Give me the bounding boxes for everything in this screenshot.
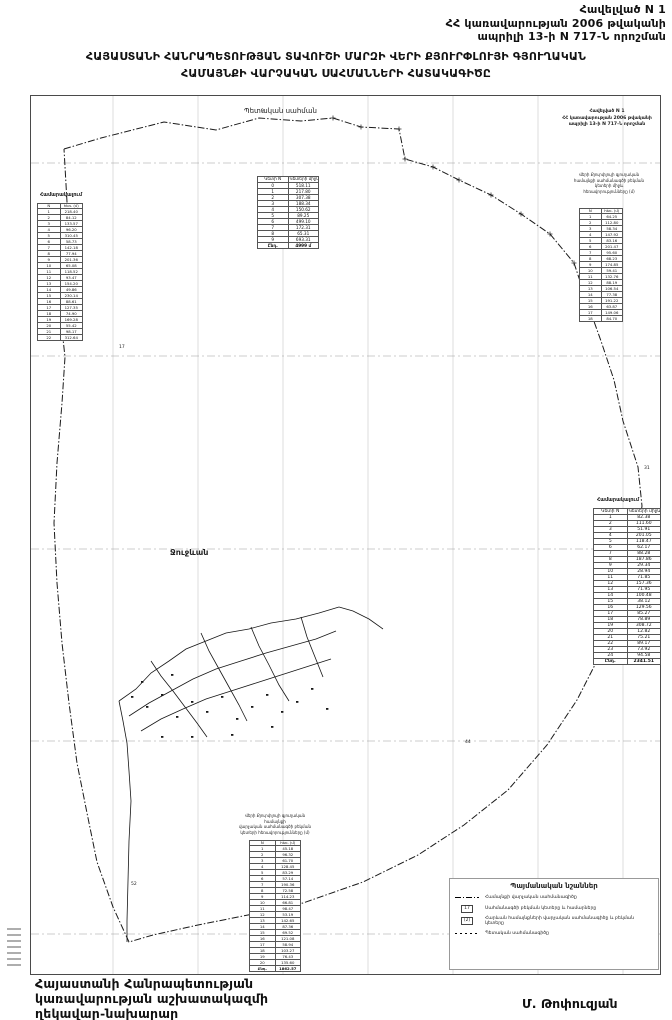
signature-block: Հայաստանի Հանրապետության կառավարության ա… — [35, 976, 268, 1020]
village-label: Ջուջևան — [170, 548, 208, 557]
table-cell: հեռ. (մ) — [601, 209, 623, 214]
caption-line: Վերի Քյուրփլույի գյուղական համայնքի — [235, 813, 315, 824]
legend-item: Համայնքի վարչական սահմանագիծը — [454, 894, 654, 901]
table-cell: Կետերի միջև հեռավոր. (մ) — [627, 509, 661, 515]
right-table-caption: Վերի Քյուրփլույի գյուղականհամայնքի սահմա… — [560, 172, 658, 194]
stamp-note: Հավելված N 1 ՀՀ կառավարության 2006 թվակա… — [558, 109, 656, 129]
legend-label: Հարևան համայնքների վարչական սահմանագիծը … — [485, 916, 654, 926]
bottom-table-caption: Վերի Քյուրփլույի գյուղական համայնքիվարչա… — [235, 813, 315, 835]
signature-line-2: կառավարության աշխատակազմի — [35, 991, 268, 1006]
page-title-line-2: ՀԱՄԱՅՆՔԻ ՎԱՐՉԱԿԱՆ ՍԱՀՄԱՆՆԵՐԻ ՀԱՏԱԿԱԳԻԾԸ — [0, 65, 672, 82]
legend-symbol-line-dotted — [454, 930, 480, 937]
table-cell: 2341.51 — [627, 659, 661, 665]
right-mid-table-label: Համարակալում — [597, 497, 639, 503]
table-row: Ընդ.2341.51 — [594, 659, 661, 665]
table-right-mid: Կետի NԿետերի միջև հեռավոր. (մ)182.382111… — [593, 508, 661, 665]
legend-label: Պետական սահմանագիծը — [485, 931, 549, 936]
signature-line-1: Հայաստանի Հանրապետության — [35, 976, 268, 991]
table-cell: 312.64 — [60, 335, 83, 341]
table-cell: 22 — [38, 335, 61, 341]
table-cell: Ընդ. — [250, 966, 276, 972]
legend-label: Համայնքի վարչական սահմանագիծը — [485, 895, 577, 900]
table-left: Nհեռ. (մ)1218.40284.123133.57496.205310.… — [37, 203, 83, 341]
table-row: Ընդ.1862.57 — [250, 966, 301, 972]
table-cell: 18 — [580, 316, 602, 322]
table-bottom-center: Nհեռ. (մ)145.18296.32361.704128.45583.29… — [249, 840, 301, 972]
legend-label: Սահմանագծի բեկման կետերը և համարները — [485, 906, 596, 911]
caption-line: կետերի հեռավորությունները (մ) — [235, 830, 315, 836]
table-row: Ընդ.4999 մ — [258, 242, 319, 248]
legend-symbol-line-dashdot — [454, 894, 480, 901]
appendix-note: Հավելված N 1 ՀՀ կառավարության 2006 թվակա… — [446, 3, 666, 44]
signature-line-3: ղեկավար-նախարար — [35, 1006, 268, 1020]
map-frame: 9121723314452 Պետական սահման Ջուջևան Հավ… — [30, 95, 661, 975]
table-right-top: Nհեռ. (մ)164.252112.80358.344147.92583.1… — [579, 208, 623, 322]
table-row: 22312.64 — [38, 335, 83, 341]
table-cell: Կետերի միջև հեռավոր. (մ) — [288, 177, 319, 183]
caption-line: վարչական սահմանագծի բեկման — [235, 824, 315, 830]
page-title: ՀԱՅԱՍՏԱՆԻ ՀԱՆՐԱՊԵՏՈՒԹՅԱՆ ՏԱՎՈՒՇԻ ՄԱՐԶԻ Վ… — [0, 48, 672, 82]
legend-items: Համայնքի վարչական սահմանագիծը17Սահմանագծ… — [454, 894, 654, 937]
legend-item: (2)Հարևան համայնքների վարչական սահմանագի… — [454, 916, 654, 926]
legend-item: 17Սահմանագծի բեկման կետերը և համարները — [454, 905, 654, 912]
appendix-line-3: ապրիլի 13-ի N 717-Ն որոշման — [446, 30, 666, 44]
table-top-center: Կետի NԿետերի միջև հեռավոր. (մ)0518.11121… — [257, 176, 319, 249]
legend-symbol-box: 17 — [454, 905, 480, 912]
state-border-label: Պետական սահման — [244, 107, 317, 115]
legend: Պայմանական նշաններ Համայնքի վարչական սահ… — [449, 878, 659, 970]
page-title-line-1: ՀԱՅԱՍՏԱՆԻ ՀԱՆՐԱՊԵՏՈՒԹՅԱՆ ՏԱՎՈՒՇԻ ՄԱՐԶԻ Վ… — [0, 48, 672, 65]
signature-name: Մ. Թոփուզյան — [522, 996, 618, 1011]
document-page: Հավելված N 1 ՀՀ կառավարության 2006 թվակա… — [0, 0, 672, 1020]
legend-item: Պետական սահմանագիծը — [454, 930, 654, 937]
table-cell: 1862.57 — [275, 966, 301, 972]
caption-line: հեռավորությունները (մ) — [560, 189, 658, 195]
legend-symbol-box: (2) — [454, 918, 480, 925]
table-cell: Ընդ. — [258, 242, 289, 248]
margin-mark — [7, 928, 21, 968]
appendix-line-2: ՀՀ կառավարության 2006 թվականի — [446, 17, 666, 31]
map-svg — [31, 96, 660, 974]
legend-title: Պայմանական նշաններ — [454, 882, 654, 890]
table-row: 1884.70 — [580, 316, 623, 322]
stamp-line-3: ապրիլի 13-ի N 717-Ն որոշման — [558, 122, 656, 129]
appendix-line-1: Հավելված N 1 — [446, 3, 666, 17]
left-table-label: Համարակալում — [40, 192, 82, 198]
table-cell: Ընդ. — [594, 659, 628, 665]
table-cell: 4999 մ — [288, 242, 319, 248]
table-cell: 84.70 — [601, 316, 623, 322]
